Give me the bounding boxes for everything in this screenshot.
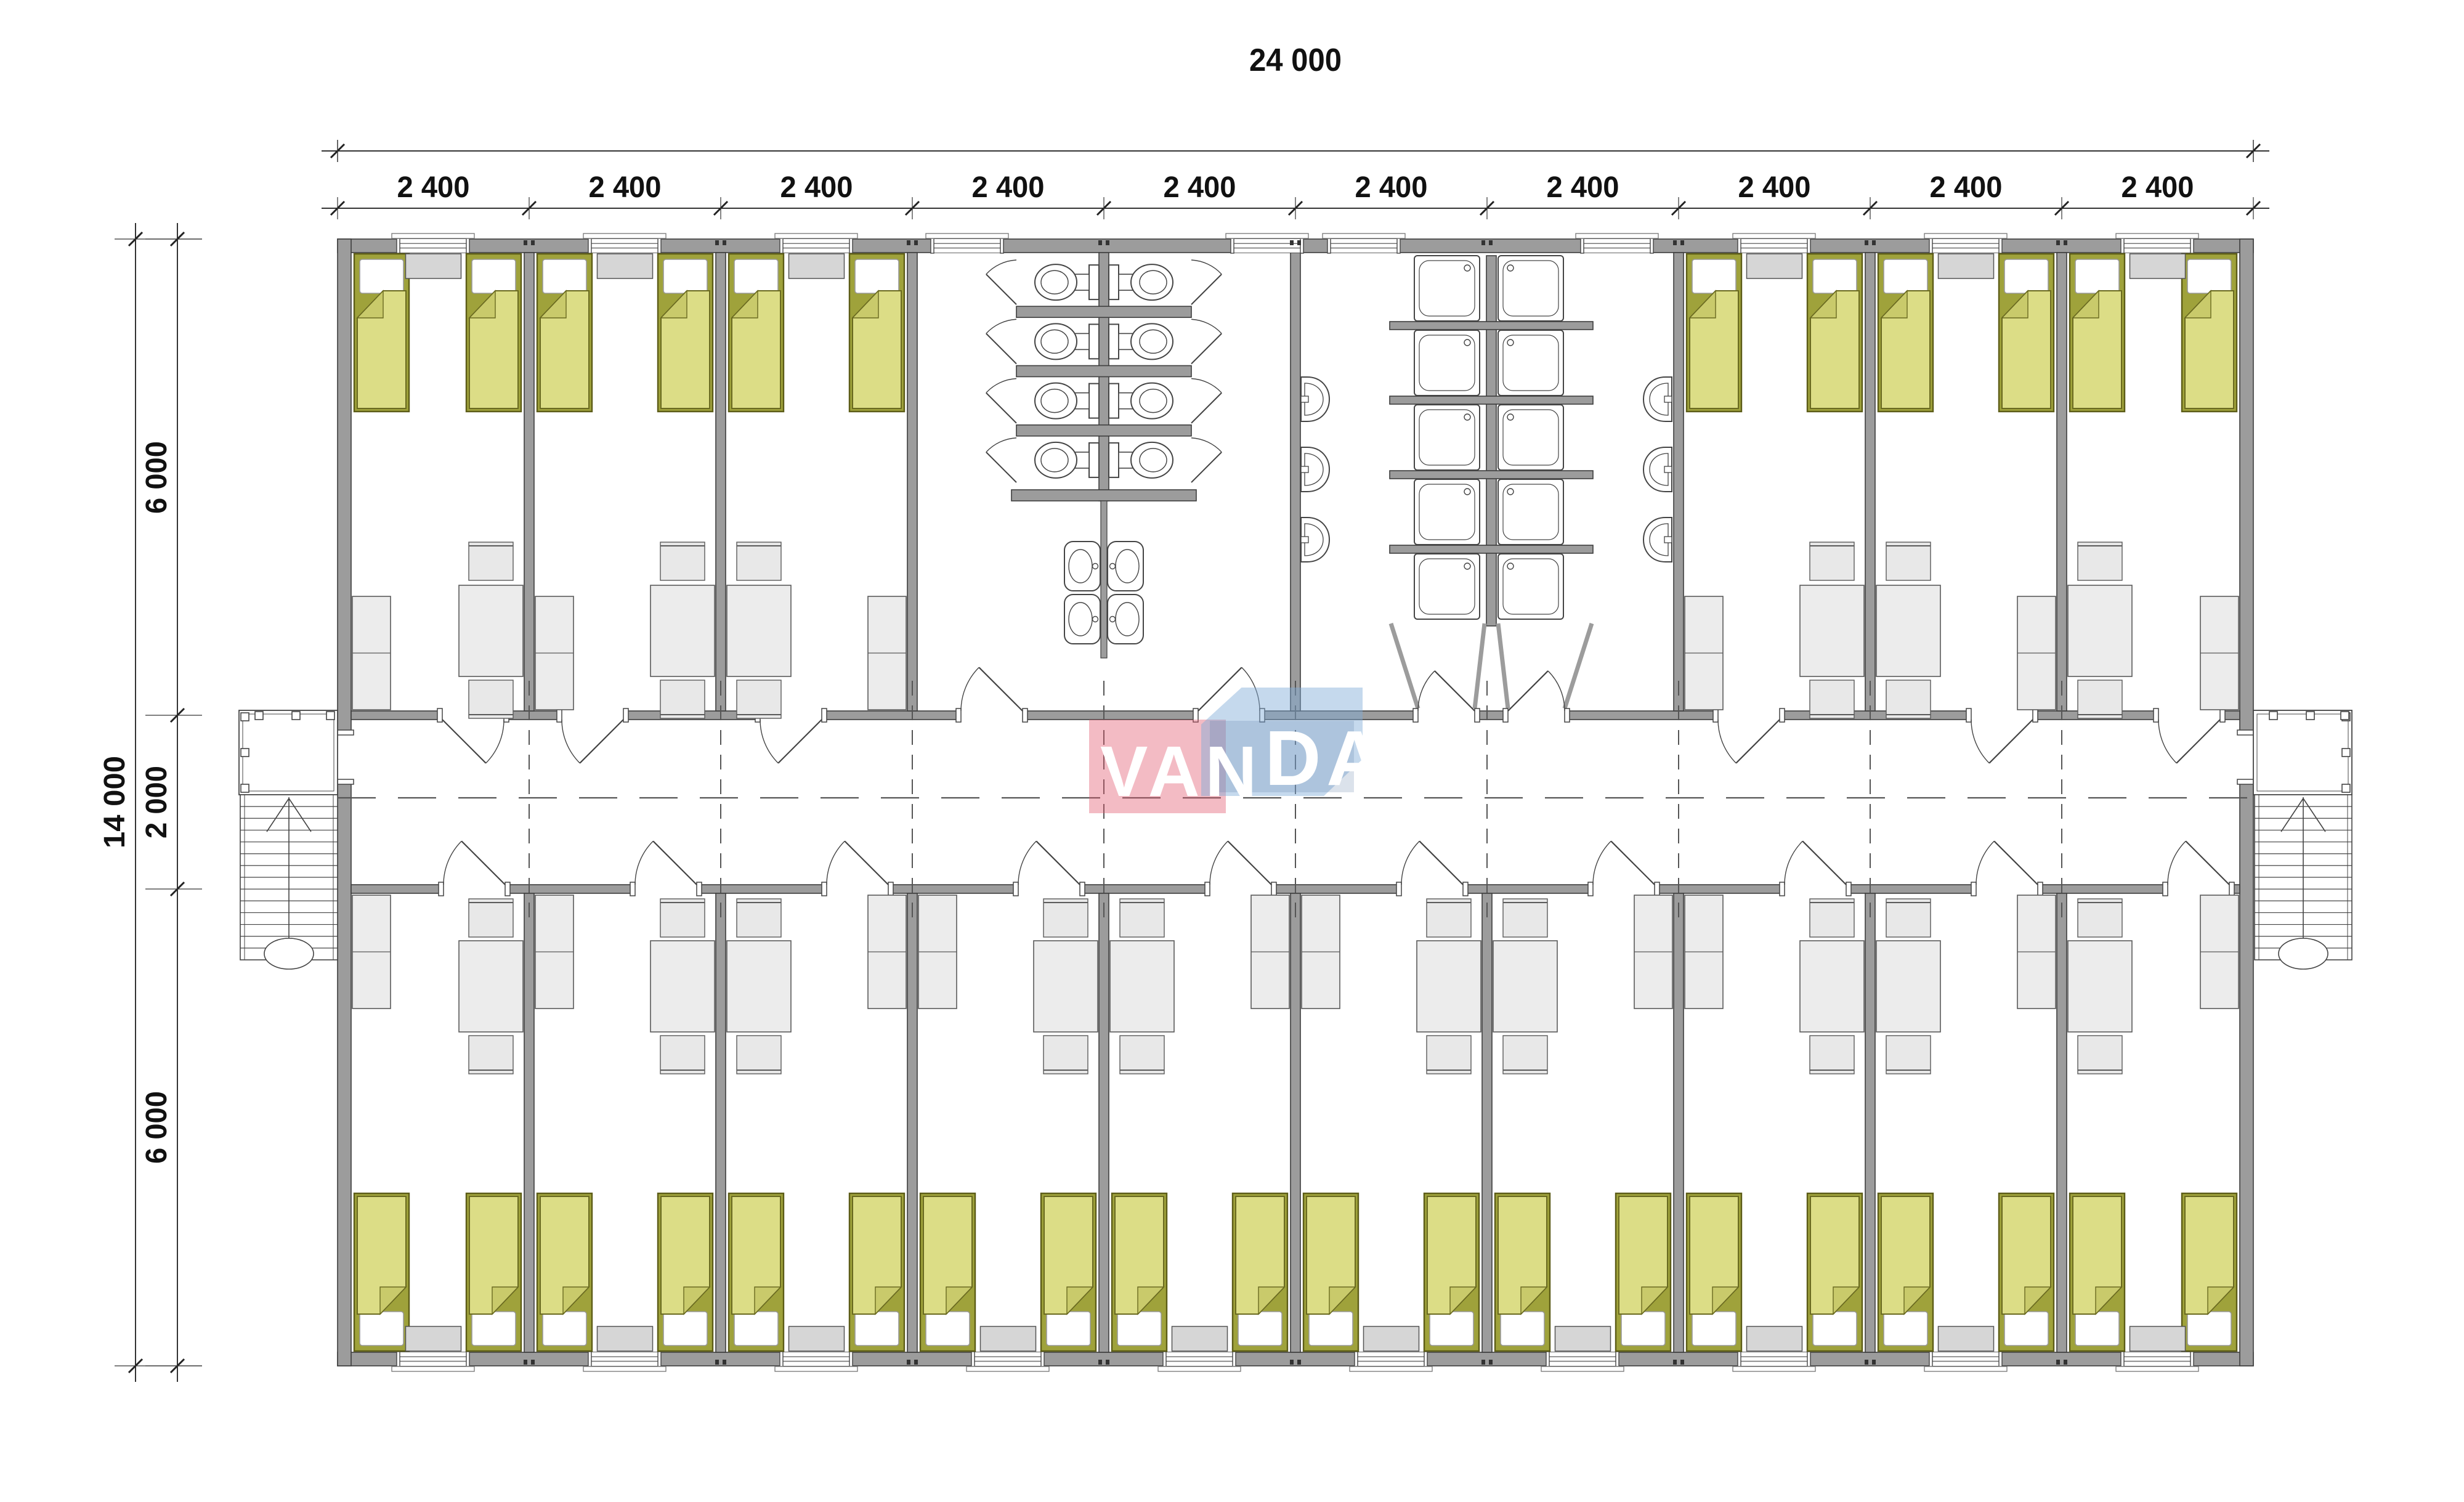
- stall-door: [1191, 438, 1222, 482]
- window-shelf: [406, 254, 461, 278]
- table: [727, 585, 791, 676]
- window-shelf: [789, 254, 845, 278]
- window-shelf: [1939, 1326, 1994, 1351]
- door: [956, 667, 1027, 722]
- chair: [1886, 1036, 1931, 1074]
- stall-door: [986, 379, 1016, 423]
- sink: [1643, 377, 1672, 421]
- svg-text:2 000: 2 000: [140, 766, 173, 838]
- bed: [354, 254, 409, 412]
- shower-tray: [1414, 554, 1480, 619]
- door: [1588, 841, 1660, 896]
- chair: [660, 542, 705, 580]
- window-shelf: [1939, 254, 1994, 278]
- sink: [1301, 377, 1329, 421]
- svg-text:6 000: 6 000: [140, 1091, 173, 1164]
- window: [1350, 1352, 1432, 1371]
- door: [630, 841, 702, 896]
- stall-door: [1191, 379, 1222, 423]
- svg-text:2 400: 2 400: [780, 171, 853, 204]
- table: [650, 941, 715, 1032]
- partition-bottom-band: [716, 893, 726, 1352]
- sink: [1301, 447, 1329, 492]
- wardrobe: [918, 895, 957, 1009]
- chair: [1886, 680, 1931, 718]
- partition-top-band: [716, 253, 726, 711]
- chair: [737, 680, 781, 718]
- bed: [2182, 1193, 2237, 1351]
- window: [583, 233, 666, 253]
- stall-door: [1191, 260, 1222, 304]
- window: [1576, 233, 1658, 253]
- bed: [1041, 1193, 1096, 1351]
- partition-bottom-band: [2057, 893, 2067, 1352]
- table: [2068, 941, 2132, 1032]
- bed: [2182, 254, 2237, 412]
- chair: [1886, 899, 1931, 937]
- window: [392, 233, 474, 253]
- partition-bottom-band: [1099, 893, 1109, 1352]
- door: [1205, 841, 1276, 896]
- partition-top-band: [1674, 253, 1684, 711]
- wardrobe: [1251, 895, 1289, 1009]
- exterior-wall-left: [338, 239, 351, 1366]
- window-shelf: [1364, 1326, 1419, 1351]
- chair: [1044, 1036, 1088, 1074]
- wardrobe: [352, 895, 391, 1009]
- bed: [2070, 254, 2125, 412]
- door: [1713, 708, 1785, 763]
- svg-text:2 400: 2 400: [2122, 171, 2194, 204]
- bed: [849, 254, 904, 412]
- bed: [1878, 254, 1933, 412]
- bed: [1112, 1193, 1167, 1351]
- chair: [737, 899, 781, 937]
- bed: [1687, 254, 1741, 412]
- chair: [469, 1036, 513, 1074]
- door: [1013, 841, 1085, 896]
- chair: [1427, 1036, 1471, 1074]
- wardrobe: [2200, 596, 2239, 710]
- window: [1924, 1352, 2007, 1371]
- svg-text:2 400: 2 400: [972, 171, 1045, 204]
- shower-tray: [1498, 405, 1563, 470]
- window: [1541, 1352, 1624, 1371]
- table: [1493, 941, 1557, 1032]
- table: [1800, 941, 1864, 1032]
- window-shelf: [1747, 1326, 1802, 1351]
- table: [727, 941, 791, 1032]
- stall-door: [986, 260, 1016, 304]
- toilet: [1035, 264, 1099, 300]
- shower-partition: [1390, 322, 1593, 330]
- svg-text:2 400: 2 400: [589, 171, 662, 204]
- bed: [537, 1193, 592, 1351]
- shower-partition: [1390, 545, 1593, 553]
- chair: [2078, 1036, 2122, 1074]
- window: [1226, 233, 1308, 253]
- shower-centre-wall: [1486, 256, 1496, 626]
- toilet: [1109, 264, 1173, 300]
- partition-bottom-band: [1291, 893, 1300, 1352]
- chair: [660, 680, 705, 718]
- shower-tray: [1414, 256, 1480, 321]
- table: [650, 585, 715, 676]
- chair: [1120, 1036, 1164, 1074]
- window-shelf: [598, 254, 653, 278]
- chair: [2078, 542, 2122, 580]
- partition-bottom-band: [1674, 893, 1684, 1352]
- chair: [737, 1036, 781, 1074]
- window-shelf: [1747, 254, 1802, 278]
- logo-text-van: VAN: [1100, 736, 1262, 807]
- window-shelf: [2130, 1326, 2186, 1351]
- shower-partition: [1390, 471, 1593, 479]
- wardrobe: [535, 895, 573, 1009]
- chair: [1503, 1036, 1547, 1074]
- chair: [469, 542, 513, 580]
- sink: [1643, 518, 1672, 562]
- window: [926, 233, 1008, 253]
- partition-bottom-band: [907, 893, 917, 1352]
- bed: [1303, 1193, 1358, 1351]
- toilet: [1035, 383, 1099, 419]
- chair: [1044, 899, 1088, 937]
- bed: [537, 254, 592, 412]
- wardrobe: [1302, 895, 1340, 1009]
- wardrobe: [868, 596, 906, 710]
- window-shelf: [406, 1326, 461, 1351]
- chair: [737, 542, 781, 580]
- partition-bottom-band: [1482, 893, 1492, 1352]
- sink: [1108, 595, 1143, 644]
- table: [1110, 941, 1174, 1032]
- chair: [1120, 899, 1164, 937]
- window-shelf: [2130, 254, 2186, 278]
- partition-bottom-band: [524, 893, 534, 1352]
- shower-tray: [1414, 479, 1480, 545]
- window-shelf: [598, 1326, 653, 1351]
- floor-plan-canvas: 24 0002 4002 4002 4002 4002 4002 4002 40…: [0, 0, 2464, 1502]
- bed: [1999, 1193, 2054, 1351]
- window: [775, 233, 857, 253]
- table: [459, 941, 523, 1032]
- partition-top-band: [1291, 253, 1300, 711]
- chair: [660, 899, 705, 937]
- bed: [1424, 1193, 1479, 1351]
- window: [1323, 233, 1405, 253]
- window: [2116, 233, 2199, 253]
- chair: [1810, 680, 1854, 718]
- toilet-stall-partition: [1016, 425, 1191, 436]
- sink: [1108, 542, 1143, 591]
- chair: [1810, 1036, 1854, 1074]
- door: [1780, 841, 1851, 896]
- shower-tray: [1414, 405, 1480, 470]
- partition-bottom-band: [1865, 893, 1875, 1352]
- bed: [2070, 1193, 2125, 1351]
- toilet: [1035, 323, 1099, 359]
- bed: [658, 1193, 713, 1351]
- shower-partition: [1390, 396, 1593, 404]
- svg-text:14 000: 14 000: [99, 756, 131, 848]
- table: [459, 585, 523, 676]
- bed: [1495, 1193, 1550, 1351]
- exterior-wall-right: [2240, 239, 2253, 1366]
- partition-top-band: [907, 253, 917, 711]
- window-shelf: [981, 1326, 1036, 1351]
- chair: [469, 680, 513, 718]
- table: [1034, 941, 1098, 1032]
- stall-door: [986, 319, 1016, 363]
- chair: [1427, 899, 1471, 937]
- window: [2116, 1352, 2199, 1371]
- chair: [469, 899, 513, 937]
- svg-text:2 400: 2 400: [397, 171, 470, 204]
- chair: [2078, 899, 2122, 937]
- door: [2154, 708, 2225, 763]
- bed: [466, 254, 521, 412]
- bed: [920, 1193, 975, 1351]
- door: [439, 841, 510, 896]
- logo-text-da: DA: [1265, 720, 1388, 797]
- window-shelf: [789, 1326, 845, 1351]
- window-shelf: [1172, 1326, 1228, 1351]
- partition-top-band: [2057, 253, 2067, 711]
- svg-text:6 000: 6 000: [140, 441, 173, 514]
- svg-text:2 400: 2 400: [1738, 171, 1811, 204]
- door: [557, 708, 628, 763]
- table: [1876, 585, 1940, 676]
- bed: [354, 1193, 409, 1351]
- window: [775, 1352, 857, 1371]
- bed: [729, 254, 784, 412]
- stall-door: [1191, 319, 1222, 363]
- svg-text:2 400: 2 400: [1930, 171, 2003, 204]
- window: [967, 1352, 1049, 1371]
- bed: [1687, 1193, 1741, 1351]
- door: [1971, 841, 2043, 896]
- wardrobe: [352, 596, 391, 710]
- vanda-logo: VANDA: [1089, 688, 1366, 814]
- chair: [1810, 542, 1854, 580]
- wardrobe: [2200, 895, 2239, 1009]
- shower-tray: [1498, 330, 1563, 396]
- sink: [1064, 595, 1100, 644]
- shower-tray: [1498, 256, 1563, 321]
- door: [2163, 841, 2234, 896]
- chair: [1503, 899, 1547, 937]
- toilet: [1109, 383, 1173, 419]
- toilet-stall-end-wall: [1011, 490, 1196, 501]
- shower-tray: [1414, 330, 1480, 396]
- logo-word: VANDA: [1100, 688, 1365, 813]
- stairs-right: [2253, 710, 2352, 969]
- toilet: [1035, 442, 1099, 478]
- svg-text:24 000: 24 000: [1249, 43, 1342, 78]
- wardrobe: [1634, 895, 1672, 1009]
- table: [1800, 585, 1864, 676]
- wardrobe: [2017, 596, 2056, 710]
- bed: [1999, 254, 2054, 412]
- stall-door: [986, 438, 1016, 482]
- partition-top-band: [1865, 253, 1875, 711]
- bed: [849, 1193, 904, 1351]
- wardrobe: [868, 895, 906, 1009]
- chair: [1810, 899, 1854, 937]
- bed: [1807, 254, 1862, 412]
- wardrobe: [1685, 596, 1723, 710]
- chair: [2078, 680, 2122, 718]
- svg-text:2 400: 2 400: [1164, 171, 1236, 204]
- bed: [729, 1193, 784, 1351]
- bed: [1807, 1193, 1862, 1351]
- stairs-left: [239, 710, 338, 969]
- chair: [660, 1036, 705, 1074]
- door: [1966, 708, 2038, 763]
- window: [392, 1352, 474, 1371]
- table: [1876, 941, 1940, 1032]
- wardrobe: [535, 596, 573, 710]
- toilet: [1109, 323, 1173, 359]
- toilet: [1109, 442, 1173, 478]
- chair: [1886, 542, 1931, 580]
- door: [1396, 841, 1468, 896]
- toilet-stall-partition: [1016, 366, 1191, 377]
- partition-top-band: [524, 253, 534, 711]
- window-shelf: [1555, 1326, 1611, 1351]
- window: [1158, 1352, 1241, 1371]
- svg-text:2 400: 2 400: [1547, 171, 1619, 204]
- window: [1924, 233, 2007, 253]
- window: [1733, 1352, 1815, 1371]
- wardrobe: [2017, 895, 2056, 1009]
- svg-text:2 400: 2 400: [1355, 171, 1428, 204]
- table: [1417, 941, 1481, 1032]
- door: [822, 841, 893, 896]
- shower-tray: [1498, 554, 1563, 619]
- door: [1503, 671, 1570, 722]
- bed: [1233, 1193, 1287, 1351]
- bed: [658, 254, 713, 412]
- toilet-stall-partition: [1016, 306, 1191, 317]
- sink: [1301, 518, 1329, 562]
- wardrobe: [1685, 895, 1723, 1009]
- sink: [1643, 447, 1672, 492]
- window: [1733, 233, 1815, 253]
- bed: [466, 1193, 521, 1351]
- door: [1413, 671, 1480, 722]
- bed: [1616, 1193, 1671, 1351]
- shower-tray: [1498, 479, 1563, 545]
- sink: [1064, 542, 1100, 591]
- window: [583, 1352, 666, 1371]
- table: [2068, 585, 2132, 676]
- bed: [1878, 1193, 1933, 1351]
